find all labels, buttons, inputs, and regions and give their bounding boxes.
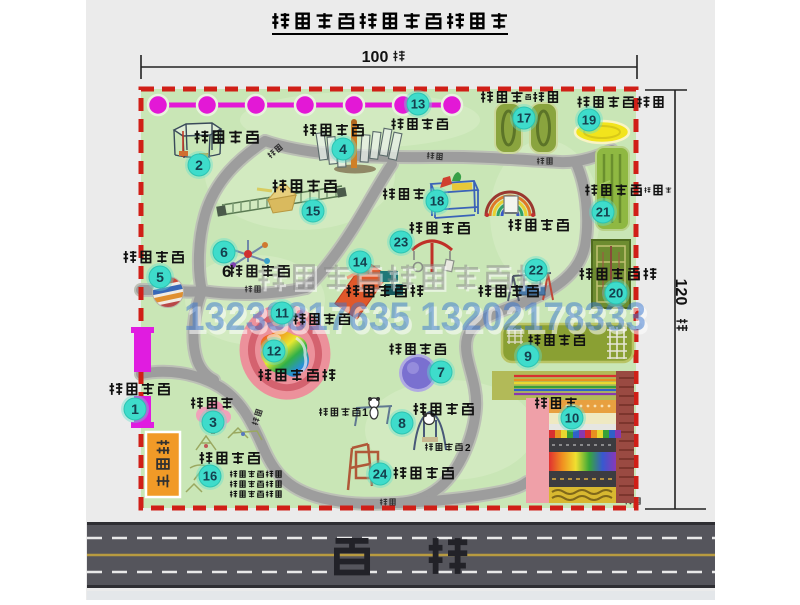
svg-text:20: 20	[609, 286, 623, 301]
svg-text:17: 17	[517, 111, 531, 126]
svg-text:2: 2	[195, 157, 203, 173]
svg-text:8: 8	[398, 415, 406, 431]
svg-text:6: 6	[220, 244, 228, 260]
svg-text:19: 19	[582, 113, 596, 128]
svg-text:18: 18	[430, 194, 444, 209]
svg-text:100: 100	[362, 49, 389, 66]
svg-text:23: 23	[394, 235, 408, 250]
svg-text:2: 2	[465, 443, 471, 454]
svg-text:15: 15	[306, 204, 320, 219]
svg-text:14: 14	[353, 255, 368, 270]
svg-text:7: 7	[437, 364, 445, 380]
svg-text:21: 21	[596, 205, 610, 220]
svg-text:3: 3	[209, 414, 217, 430]
svg-text:12: 12	[267, 344, 281, 359]
svg-text:5: 5	[156, 269, 164, 285]
svg-text:9: 9	[524, 348, 532, 364]
svg-text:11: 11	[275, 306, 289, 321]
svg-text:24: 24	[373, 467, 388, 482]
svg-text:10: 10	[565, 411, 579, 426]
svg-text:13: 13	[411, 97, 425, 112]
svg-text:4: 4	[339, 141, 347, 157]
svg-text:22: 22	[529, 263, 543, 278]
svg-text:1: 1	[362, 407, 368, 419]
svg-text:120: 120	[672, 279, 689, 306]
svg-text:1: 1	[131, 401, 139, 417]
svg-text:13233817635 13202178333: 13233817635 13202178333	[184, 295, 646, 339]
svg-text:16: 16	[203, 469, 217, 484]
